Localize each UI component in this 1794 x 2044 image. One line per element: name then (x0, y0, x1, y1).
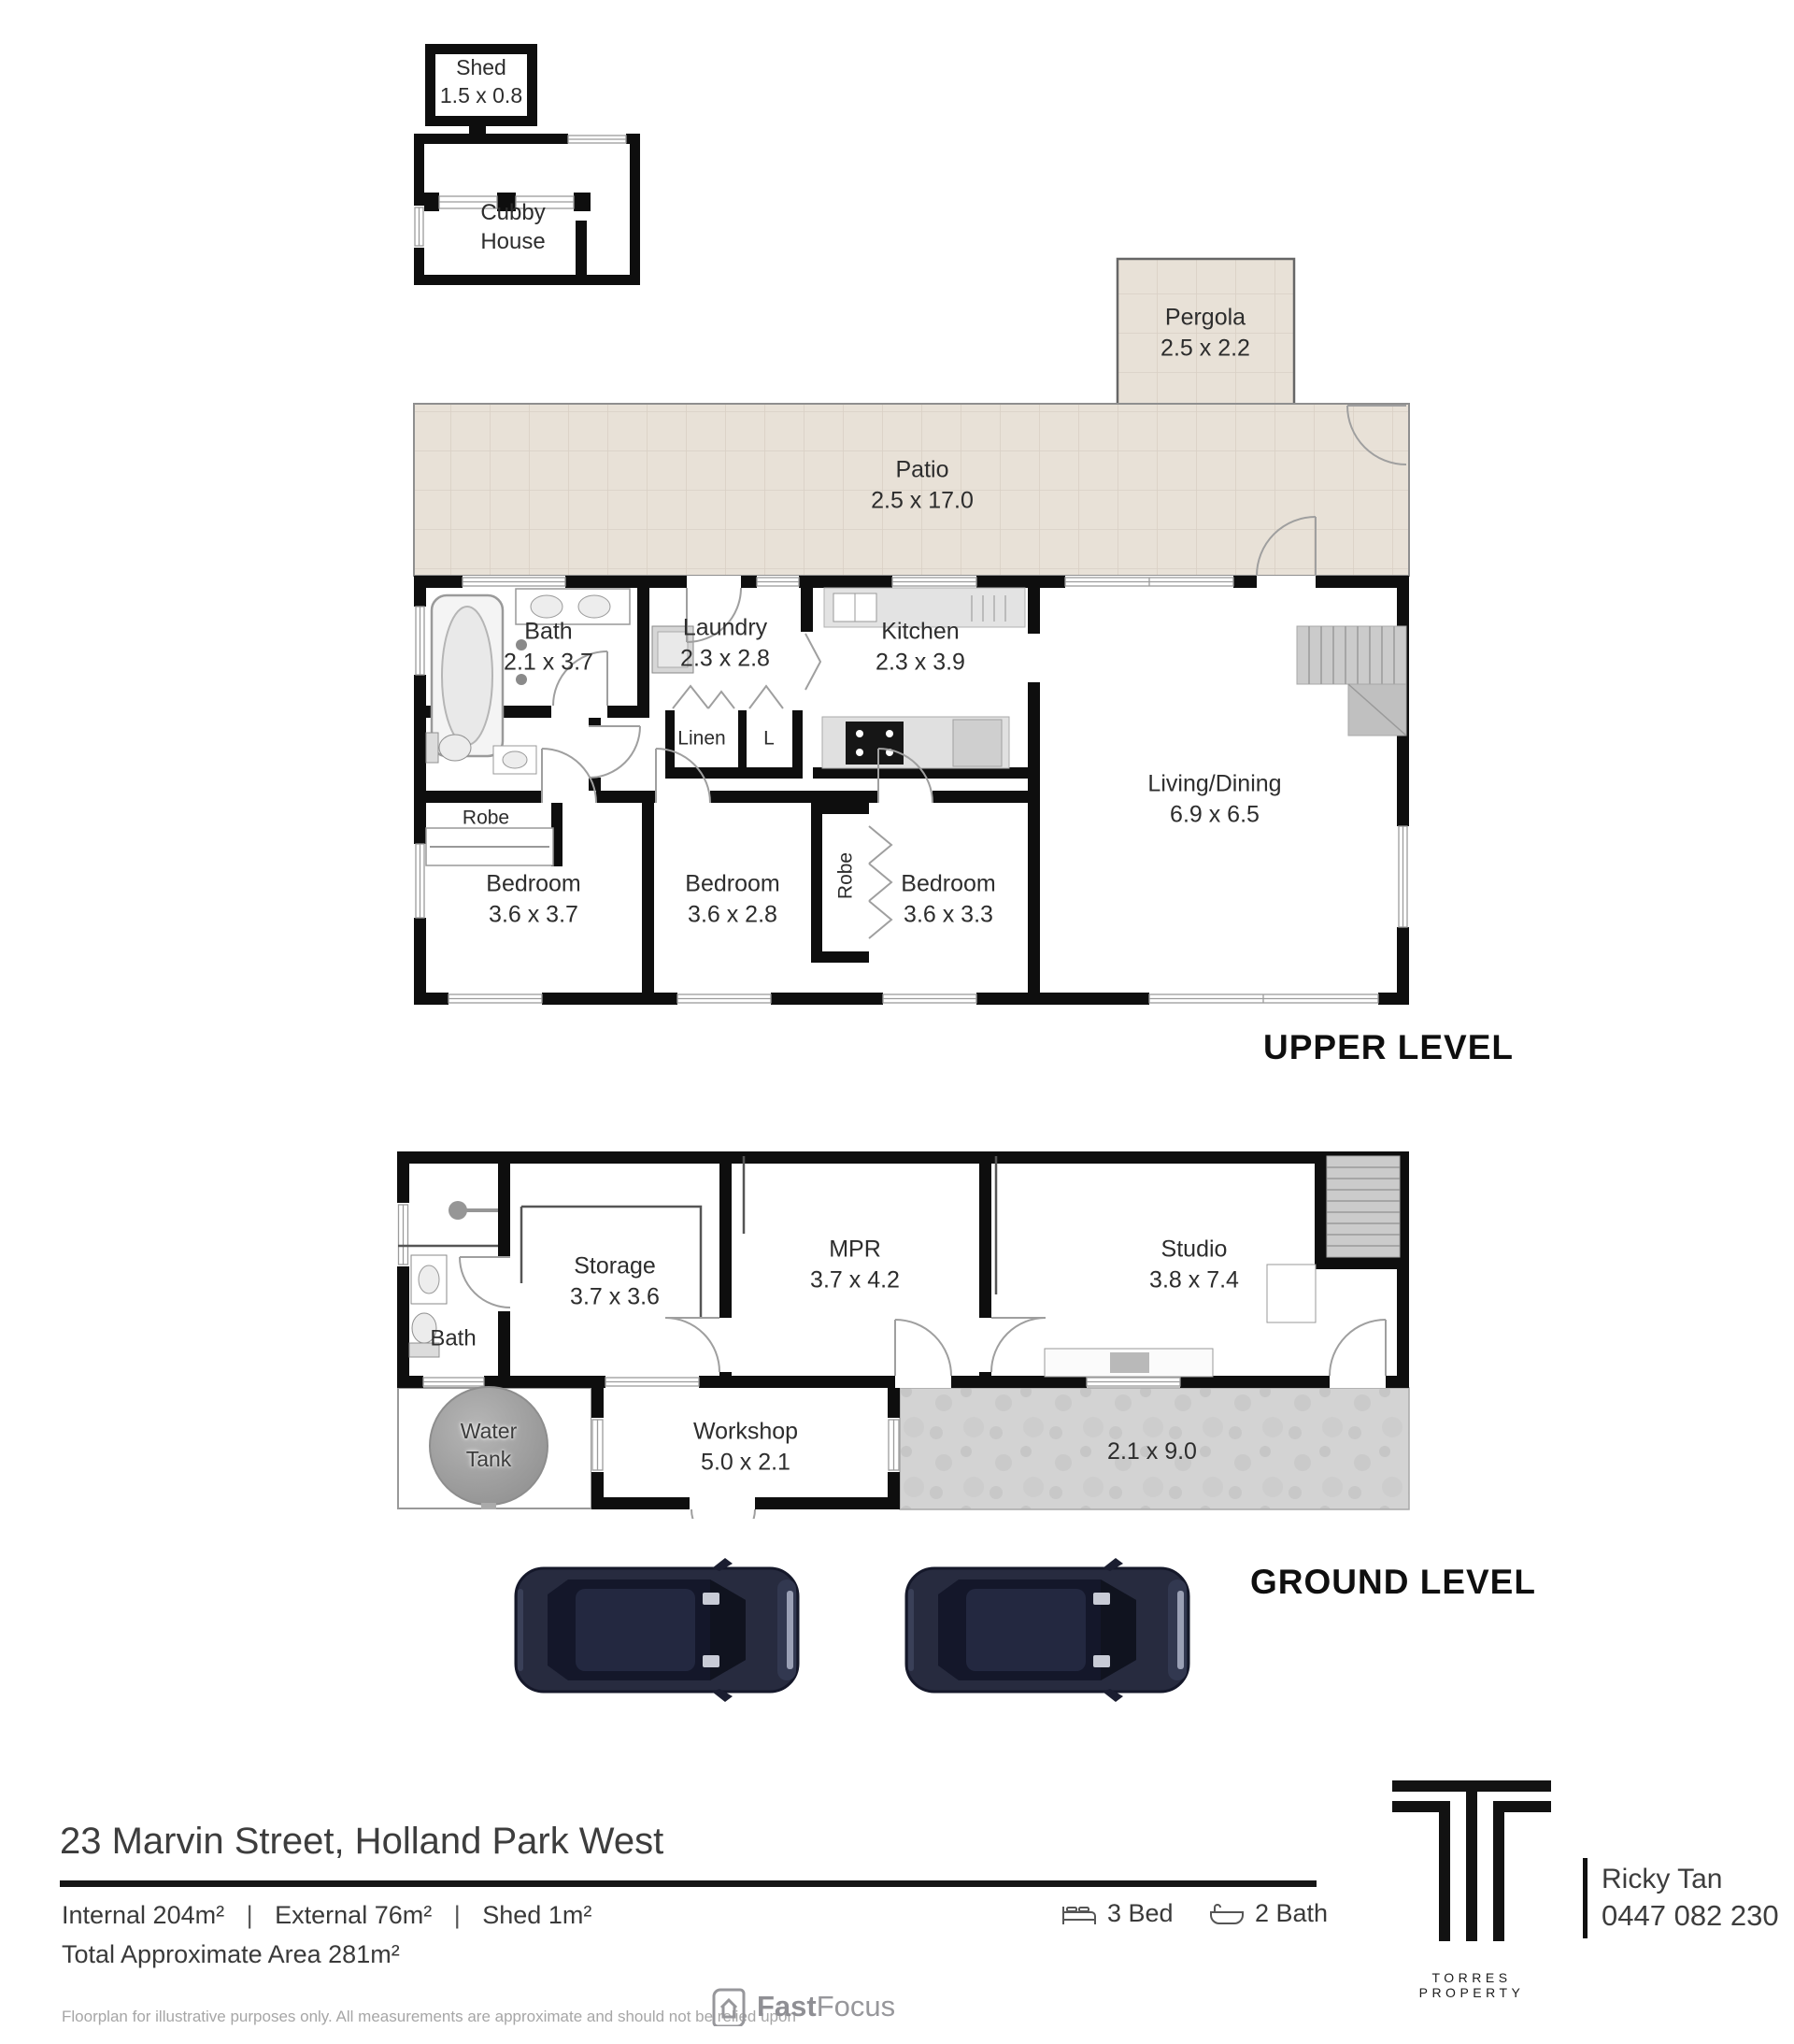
external-area: External 76m² (275, 1901, 432, 1929)
fastfocus-wordmark: FastFocus (757, 1990, 895, 2023)
car-top-view-1 (510, 1555, 809, 1705)
property-address: 23 Marvin Street, Holland Park West (60, 1821, 663, 1863)
bath-count: 2 Bath (1207, 1899, 1328, 1928)
room-label-carport-dims: 2.1 x 9.0 (1107, 1437, 1197, 1467)
room-label-studio: Studio 3.8 x 7.4 (1149, 1235, 1239, 1295)
area-summary: Internal 204m² | External 76m² | Shed 1m… (62, 1901, 591, 1930)
footer-divider (60, 1880, 1317, 1887)
ground-level-plan (391, 1145, 1418, 1519)
agent-phone: 0447 082 230 (1602, 1899, 1779, 1933)
fastfocus-brand: FastFocus (710, 1987, 895, 2026)
room-label-cubby-house: Cubby House (480, 198, 545, 256)
ground-level-title: GROUND LEVEL (1250, 1563, 1536, 1602)
room-label-bedroom2: Bedroom 3.6 x 2.8 (685, 869, 779, 930)
room-label-workshop: Workshop 5.0 x 2.1 (693, 1417, 798, 1478)
car-top-view-2 (901, 1555, 1200, 1705)
disclaimer-text: Floorplan for illustrative purposes only… (62, 2008, 796, 2026)
room-label-bath-upper: Bath 2.1 x 3.7 (504, 617, 593, 678)
upper-level-title: UPPER LEVEL (1263, 1028, 1514, 1067)
torres-property-logo (1392, 1780, 1551, 1949)
agent-name: Ricky Tan (1602, 1864, 1723, 1895)
fastfocus-icon (710, 1987, 747, 2026)
room-label-l-cupboard: L (763, 725, 775, 750)
room-label-patio: Patio 2.5 x 17.0 (871, 455, 974, 516)
room-label-laundry: Laundry 2.3 x 2.8 (680, 613, 770, 674)
bed-icon (1060, 1901, 1099, 1927)
bed-count: 3 Bed (1060, 1899, 1174, 1928)
room-label-bedroom3: Bedroom 3.6 x 3.3 (901, 869, 995, 930)
room-label-robe-nook: Robe (463, 805, 509, 830)
room-label-kitchen: Kitchen 2.3 x 3.9 (876, 617, 965, 678)
agent-divider-bar (1583, 1858, 1588, 1938)
room-label-linen: Linen (677, 725, 725, 750)
room-label-living-dining: Living/Dining 6.9 x 6.5 (1147, 769, 1281, 830)
separator: | (247, 1901, 253, 1929)
room-label-bedroom1: Bedroom 3.6 x 3.7 (486, 869, 580, 930)
room-label-robe-vertical: Robe (833, 852, 858, 899)
separator: | (454, 1901, 461, 1929)
agency-name: TORRES PROPERTY (1381, 1970, 1562, 2000)
bath-icon (1207, 1901, 1246, 1927)
room-label-water-tank: Water Tank (461, 1418, 518, 1474)
room-label-bath-ground: Bath (430, 1323, 476, 1352)
total-area: Total Approximate Area 281m² (62, 1940, 400, 1969)
room-label-mpr: MPR 3.7 x 4.2 (810, 1235, 900, 1295)
shed-area: Shed 1m² (482, 1901, 591, 1929)
room-label-storage: Storage 3.7 x 3.6 (570, 1251, 660, 1312)
floorplan-page: Shed 1.5 x 0.8 Cubby House (0, 0, 1794, 2044)
room-label-pergola: Pergola 2.5 x 2.2 (1160, 303, 1250, 364)
room-label-shed: Shed 1.5 x 0.8 (440, 54, 522, 110)
internal-area: Internal 204m² (62, 1901, 224, 1929)
